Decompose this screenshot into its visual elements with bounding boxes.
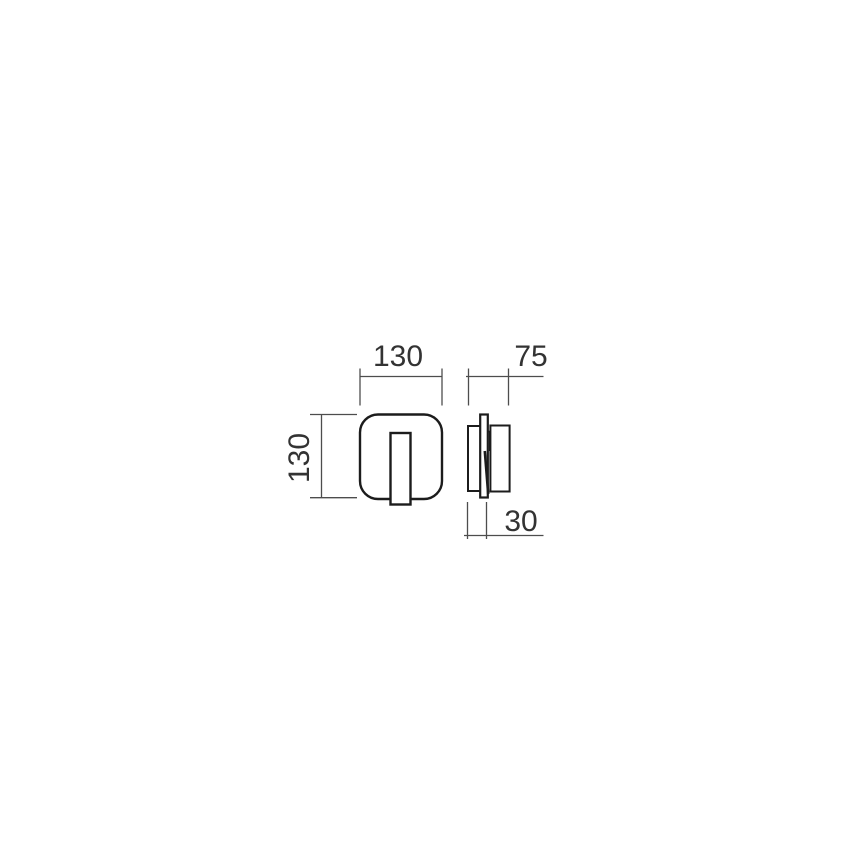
dimension-side-depth-body: 30 (464, 502, 544, 539)
dimension-drawing: 130 75 130 (0, 0, 868, 868)
dimension-front-width-label: 130 (373, 340, 423, 373)
front-view-insert-rect (391, 433, 411, 505)
dimension-front-width: 130 (360, 340, 442, 406)
dimension-front-height-label: 130 (283, 433, 316, 483)
dimension-side-depth-total: 75 (466, 340, 548, 406)
front-view (360, 415, 442, 505)
technical-drawing-canvas: 130 75 130 (0, 0, 868, 868)
side-view-front-block (490, 426, 509, 492)
dimension-side-depth-total-label: 75 (514, 340, 547, 373)
dimension-front-height: 130 (283, 415, 357, 499)
side-view (468, 415, 510, 498)
dimension-side-depth-body-label: 30 (504, 505, 537, 538)
